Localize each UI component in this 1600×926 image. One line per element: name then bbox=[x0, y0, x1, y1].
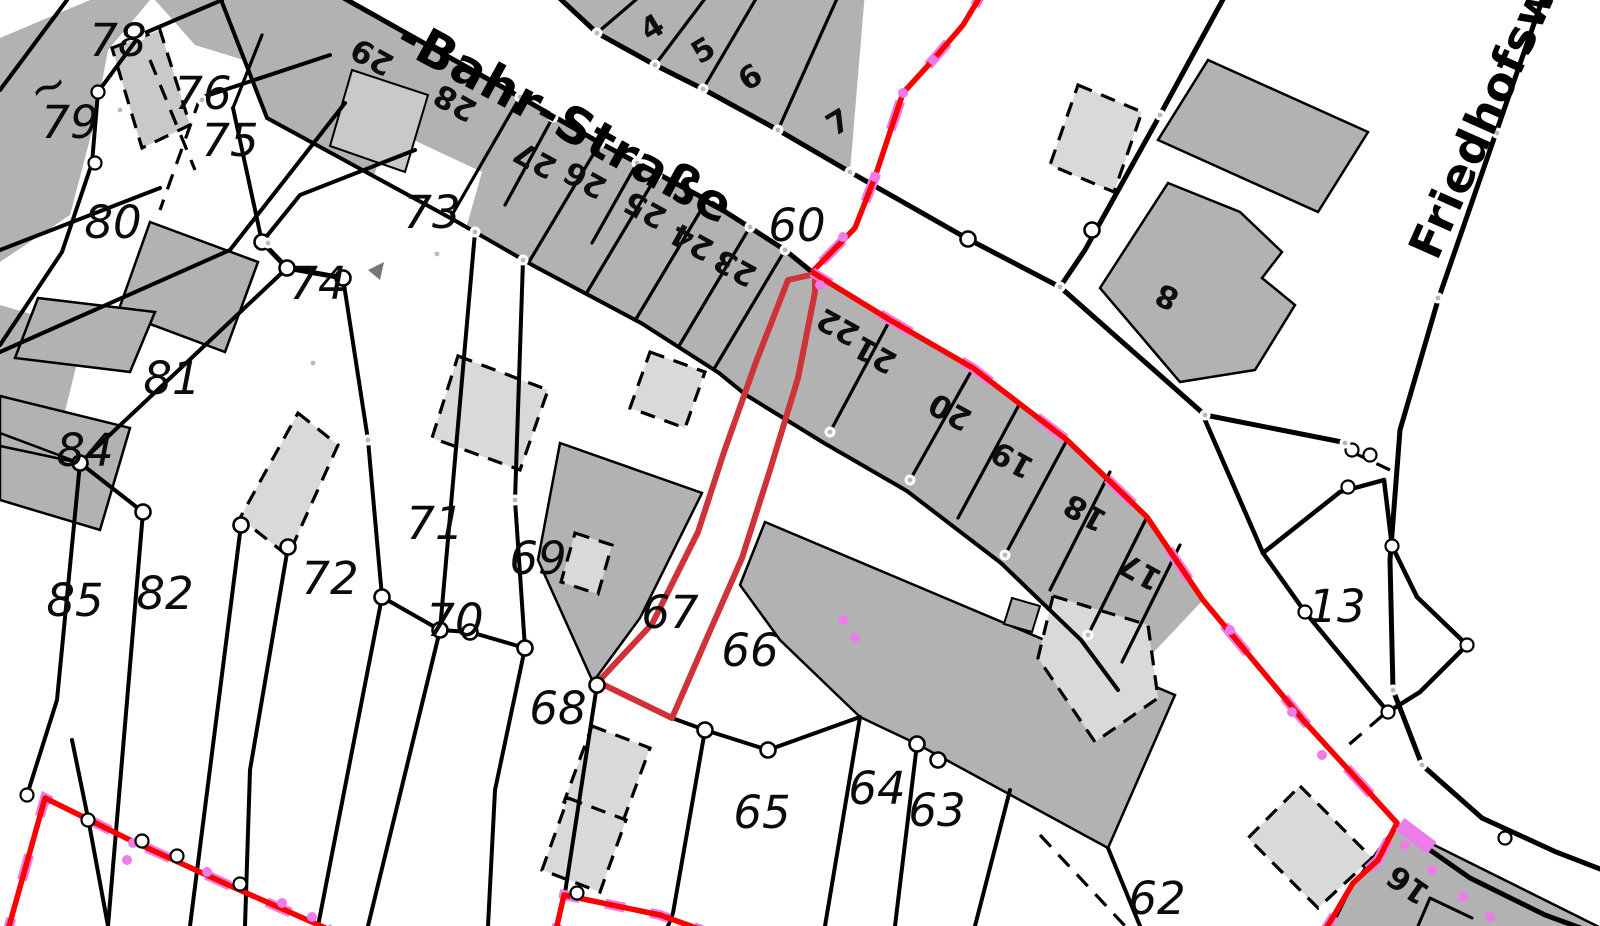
boundary-point-node bbox=[281, 540, 296, 555]
parcel-label-72: 72 bbox=[301, 552, 358, 605]
boundary-point-node bbox=[1386, 540, 1399, 553]
parcel-label-13: 13 bbox=[1308, 580, 1365, 633]
boundary-point-node bbox=[136, 505, 151, 520]
boundary-point-node bbox=[82, 814, 95, 827]
violet-point-marker bbox=[1458, 892, 1468, 902]
violet-point-marker bbox=[277, 898, 287, 908]
line-point-dot bbox=[1203, 413, 1208, 418]
line-point-dot bbox=[1343, 441, 1348, 446]
violet-point-marker bbox=[838, 615, 848, 625]
parcel-label-74: 74 bbox=[289, 257, 346, 310]
violet-point-marker bbox=[202, 867, 212, 877]
boundary-point-node bbox=[961, 232, 976, 247]
parcel-label-62: 62 bbox=[1128, 872, 1185, 925]
parcel-label-78: 78 bbox=[89, 14, 146, 67]
boundary-point-node bbox=[234, 518, 249, 533]
parcel-label-70: 70 bbox=[426, 594, 483, 647]
parcel-label-63: 63 bbox=[908, 784, 965, 837]
parcel-label-85: 85 bbox=[46, 574, 103, 627]
violet-point-marker bbox=[870, 172, 880, 182]
line-point-dot bbox=[908, 478, 913, 483]
line-point-dot bbox=[513, 498, 518, 503]
parcel-label-80: 80 bbox=[84, 196, 141, 249]
violet-point-marker bbox=[1317, 750, 1327, 760]
line-point-dot bbox=[118, 108, 123, 113]
violet-point-marker bbox=[1485, 912, 1495, 922]
parcel-label-75: 75 bbox=[201, 114, 258, 167]
parcel-label-67: 67 bbox=[641, 586, 699, 639]
violet-point-marker bbox=[1287, 707, 1297, 717]
line-point-dot bbox=[1158, 113, 1163, 118]
violet-point-marker bbox=[928, 55, 938, 65]
violet-point-marker bbox=[122, 855, 132, 865]
boundary-point-node bbox=[1461, 639, 1474, 652]
parcel-label-79: 79 bbox=[41, 96, 98, 149]
cadastral-map-canvas[interactable]: -Bahr-Straße Friedhofsweg 78~79767580737… bbox=[0, 0, 1600, 926]
line-point-dot bbox=[366, 438, 371, 443]
parcel-label-84: 84 bbox=[56, 424, 113, 477]
boundary-point-node bbox=[234, 878, 247, 891]
boundary-point-node bbox=[518, 641, 533, 656]
line-point-dot bbox=[311, 361, 316, 366]
line-point-dot bbox=[266, 241, 271, 246]
parcel-label-65: 65 bbox=[733, 786, 790, 839]
parcel-label-69: 69 bbox=[509, 532, 566, 585]
boundary-point-node bbox=[171, 850, 184, 863]
line-point-dot bbox=[521, 258, 526, 263]
boundary-point-node bbox=[21, 789, 34, 802]
boundary-point-node bbox=[931, 753, 946, 768]
line-point-dot bbox=[701, 87, 706, 92]
parcel-label-81: 81 bbox=[143, 352, 200, 405]
violet-point-marker bbox=[1400, 840, 1410, 850]
line-point-dot bbox=[1058, 285, 1063, 290]
parcel-label-71: 71 bbox=[406, 497, 463, 550]
parcel-label-66: 66 bbox=[721, 624, 778, 677]
parcel-label-76: 76 bbox=[174, 67, 231, 120]
line-point-dot bbox=[748, 225, 753, 230]
violet-point-marker bbox=[307, 912, 317, 922]
violet-point-marker bbox=[850, 633, 860, 643]
boundary-point-node bbox=[1342, 481, 1355, 494]
line-point-dot bbox=[1420, 763, 1425, 768]
cadastral-map-viewport[interactable]: -Bahr-Straße Friedhofsweg 78~79767580737… bbox=[0, 0, 1600, 926]
boundary-point-node bbox=[375, 590, 390, 605]
boundary-point-node bbox=[136, 835, 149, 848]
boundary-point-node bbox=[1364, 449, 1377, 462]
boundary-point-node bbox=[1085, 223, 1100, 238]
parcel-label-60: 60 bbox=[768, 199, 825, 252]
boundary-point-node bbox=[571, 887, 584, 900]
line-point-dot bbox=[595, 31, 600, 36]
line-point-dot bbox=[435, 252, 440, 257]
boundary-point-node bbox=[89, 157, 102, 170]
boundary-point-node bbox=[761, 743, 776, 758]
violet-point-marker bbox=[815, 280, 825, 290]
line-point-dot bbox=[653, 63, 658, 68]
line-point-dot bbox=[1391, 688, 1396, 693]
line-point-dot bbox=[1003, 553, 1008, 558]
line-point-dot bbox=[1436, 296, 1441, 301]
parcel-label-82: 82 bbox=[136, 567, 193, 620]
boundary-point-node bbox=[590, 678, 605, 693]
boundary-point-node bbox=[910, 737, 925, 752]
parcel-label-68: 68 bbox=[529, 682, 586, 735]
boundary-point-node bbox=[1499, 832, 1512, 845]
violet-point-marker bbox=[1427, 865, 1437, 875]
parcel-label-64: 64 bbox=[848, 762, 905, 815]
line-point-dot bbox=[1086, 633, 1091, 638]
violet-point-marker bbox=[838, 232, 848, 242]
violet-point-marker bbox=[898, 88, 908, 98]
violet-point-marker bbox=[1225, 625, 1235, 635]
line-point-dot bbox=[776, 128, 781, 133]
boundary-point-node bbox=[1382, 706, 1395, 719]
boundary-point-node bbox=[698, 723, 713, 738]
line-point-dot bbox=[828, 430, 833, 435]
line-point-dot bbox=[473, 230, 478, 235]
parcel-label-73: 73 bbox=[403, 186, 460, 239]
line-point-dot bbox=[848, 170, 853, 175]
